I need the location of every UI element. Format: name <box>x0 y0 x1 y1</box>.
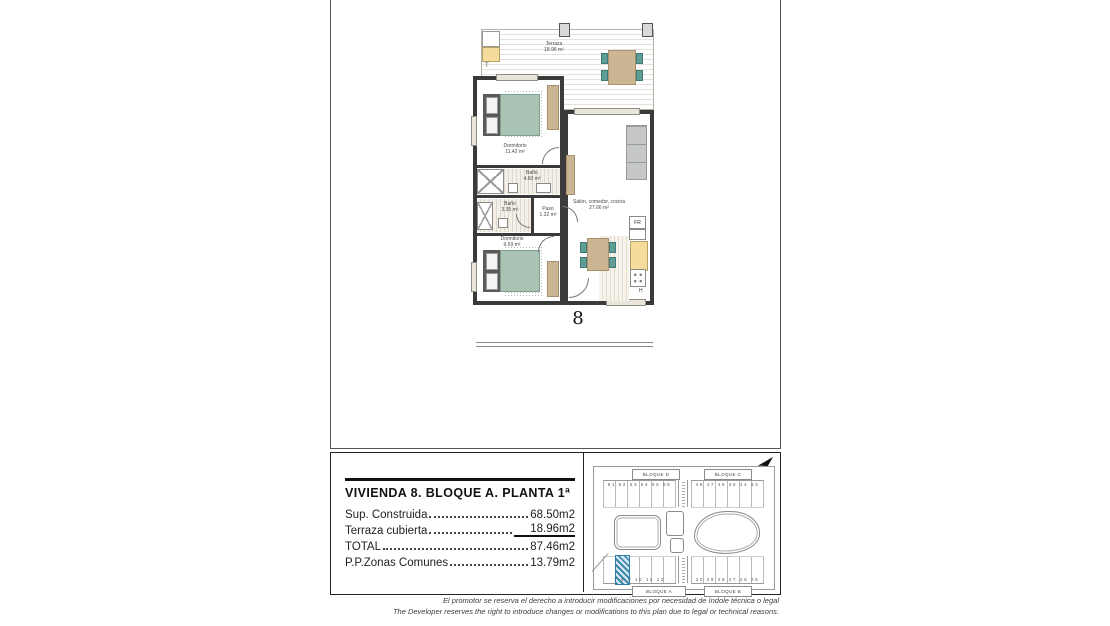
block-label-c: BLOQUE C <box>704 469 752 480</box>
unit-numbers-top-right: 48 47 46 45 44 43 <box>691 482 764 487</box>
table-row: P.P.Zonas Comunes 13.79m2 <box>345 553 575 569</box>
disclaimer: El promotor se reserva el derecho a intr… <box>200 596 779 618</box>
scale-bar <box>476 342 653 347</box>
table-row: TOTAL 87.46m2 <box>345 537 575 553</box>
unit-numbers-bottom-right: 30 29 28 27 26 25 <box>691 577 764 582</box>
terrace-post <box>642 23 653 37</box>
room-label-bath2: Baño 3.35 m² <box>494 201 526 214</box>
row-label: Sup. Construida <box>345 509 427 521</box>
info-panel: VIVIENDA 8. BLOQUE A. PLANTA 1ª Sup. Con… <box>330 452 781 595</box>
terrace-marker: T <box>485 63 489 69</box>
wardrobe-bedroom1 <box>547 85 559 130</box>
kitchen-cabinet <box>629 229 646 240</box>
shower-bath2 <box>477 202 493 230</box>
common-area <box>666 511 684 536</box>
floor-plan: T Terraza 18.96 m² Dormitorio <box>456 18 686 318</box>
disclaimer-en: The Developer reserves the right to intr… <box>200 607 779 618</box>
kitchen-hob <box>630 269 646 287</box>
partition <box>531 195 534 236</box>
bed-bedroom2 <box>500 250 540 292</box>
dot-leader <box>429 532 512 534</box>
pillow <box>486 117 498 134</box>
terrace-post <box>559 23 570 37</box>
row-label: Terraza cubierta <box>345 525 427 537</box>
room-label-living: Salón, comedor, cocina 27.66 m² <box>566 199 632 212</box>
terrace-chair <box>636 70 643 81</box>
pool-right <box>694 511 760 554</box>
dot-leader <box>383 548 528 550</box>
unit-numbers-bottom-left: 7 8 9 10 11 12 <box>603 577 676 582</box>
room-label-hall: Paso 1.32 m² <box>535 206 561 219</box>
dining-chair <box>580 257 587 268</box>
partition <box>473 165 564 168</box>
pillow <box>486 253 498 270</box>
sink-bath1 <box>536 183 551 193</box>
unit-number: 8 <box>566 308 590 329</box>
block-label-d: BLOQUE D <box>632 469 680 480</box>
sofa <box>626 125 647 180</box>
dot-leader <box>429 516 528 518</box>
terrace-chair <box>636 53 643 64</box>
terrace-chair <box>601 70 608 81</box>
plan-sheet: T Terraza 18.96 m² Dormitorio <box>330 0 781 449</box>
window-left2 <box>471 262 477 292</box>
bed-bedroom1 <box>500 94 540 136</box>
partition <box>473 195 564 198</box>
road <box>678 556 688 583</box>
wardrobe-bedroom2 <box>547 261 559 297</box>
room-label-bedroom1: Dormitorio 11.42 m² <box>489 143 541 156</box>
terrace-storage <box>482 31 500 47</box>
common-area <box>670 538 684 553</box>
pool-left <box>614 515 661 550</box>
road <box>678 480 688 507</box>
table-row: Terraza cubierta 18.96m2 <box>345 521 575 537</box>
dot-leader <box>450 564 528 566</box>
pillow <box>486 97 498 114</box>
title-rule <box>345 478 575 481</box>
shower-bath1 <box>477 169 504 194</box>
slider-terrace <box>574 108 640 115</box>
disclaimer-es: El promotor se reserva el derecho a intr… <box>200 596 779 607</box>
toilet-bath1 <box>508 183 518 193</box>
room-label-terrace: Terraza 18.96 m² <box>524 41 584 54</box>
row-value: 18.96m2 <box>514 523 575 537</box>
area-table: Sup. Construida 68.50m2 Terraza cubierta… <box>345 505 575 569</box>
plan-title: VIVIENDA 8. BLOQUE A. PLANTA 1ª <box>345 486 577 500</box>
toilet-bath2 <box>498 218 508 228</box>
row-label: TOTAL <box>345 541 381 553</box>
terrace-cabinet <box>482 47 500 62</box>
dining-table <box>587 238 609 271</box>
title-block: VIVIENDA 8. BLOQUE A. PLANTA 1ª Sup. Con… <box>331 453 584 592</box>
row-value: 13.79m2 <box>530 557 575 569</box>
room-label-bath1: Baño 4.60 m² <box>514 170 550 183</box>
row-label: P.P.Zonas Comunes <box>345 557 448 569</box>
sideboard <box>566 155 575 195</box>
hob-marker: H <box>639 288 643 294</box>
window-left <box>471 116 477 146</box>
pillow <box>486 273 498 290</box>
kitchen-counter <box>630 241 648 271</box>
table-row: Sup. Construida 68.50m2 <box>345 505 575 521</box>
row-value: 87.46m2 <box>530 541 575 553</box>
row-value: 68.50m2 <box>530 509 575 521</box>
dining-chair <box>609 257 616 268</box>
fridge: FR <box>629 216 646 229</box>
unit-numbers-top-left: 61 62 63 64 65 66 <box>603 482 676 487</box>
dining-chair <box>580 242 587 253</box>
terrace-table <box>608 50 636 85</box>
dining-chair <box>609 242 616 253</box>
window-bedroom1 <box>496 74 538 81</box>
site-plan: BLOQUE D BLOQUE C 61 62 63 64 65 66 48 4… <box>584 453 780 592</box>
terrace-chair <box>601 53 608 64</box>
site-map: BLOQUE D BLOQUE C 61 62 63 64 65 66 48 4… <box>593 466 775 590</box>
